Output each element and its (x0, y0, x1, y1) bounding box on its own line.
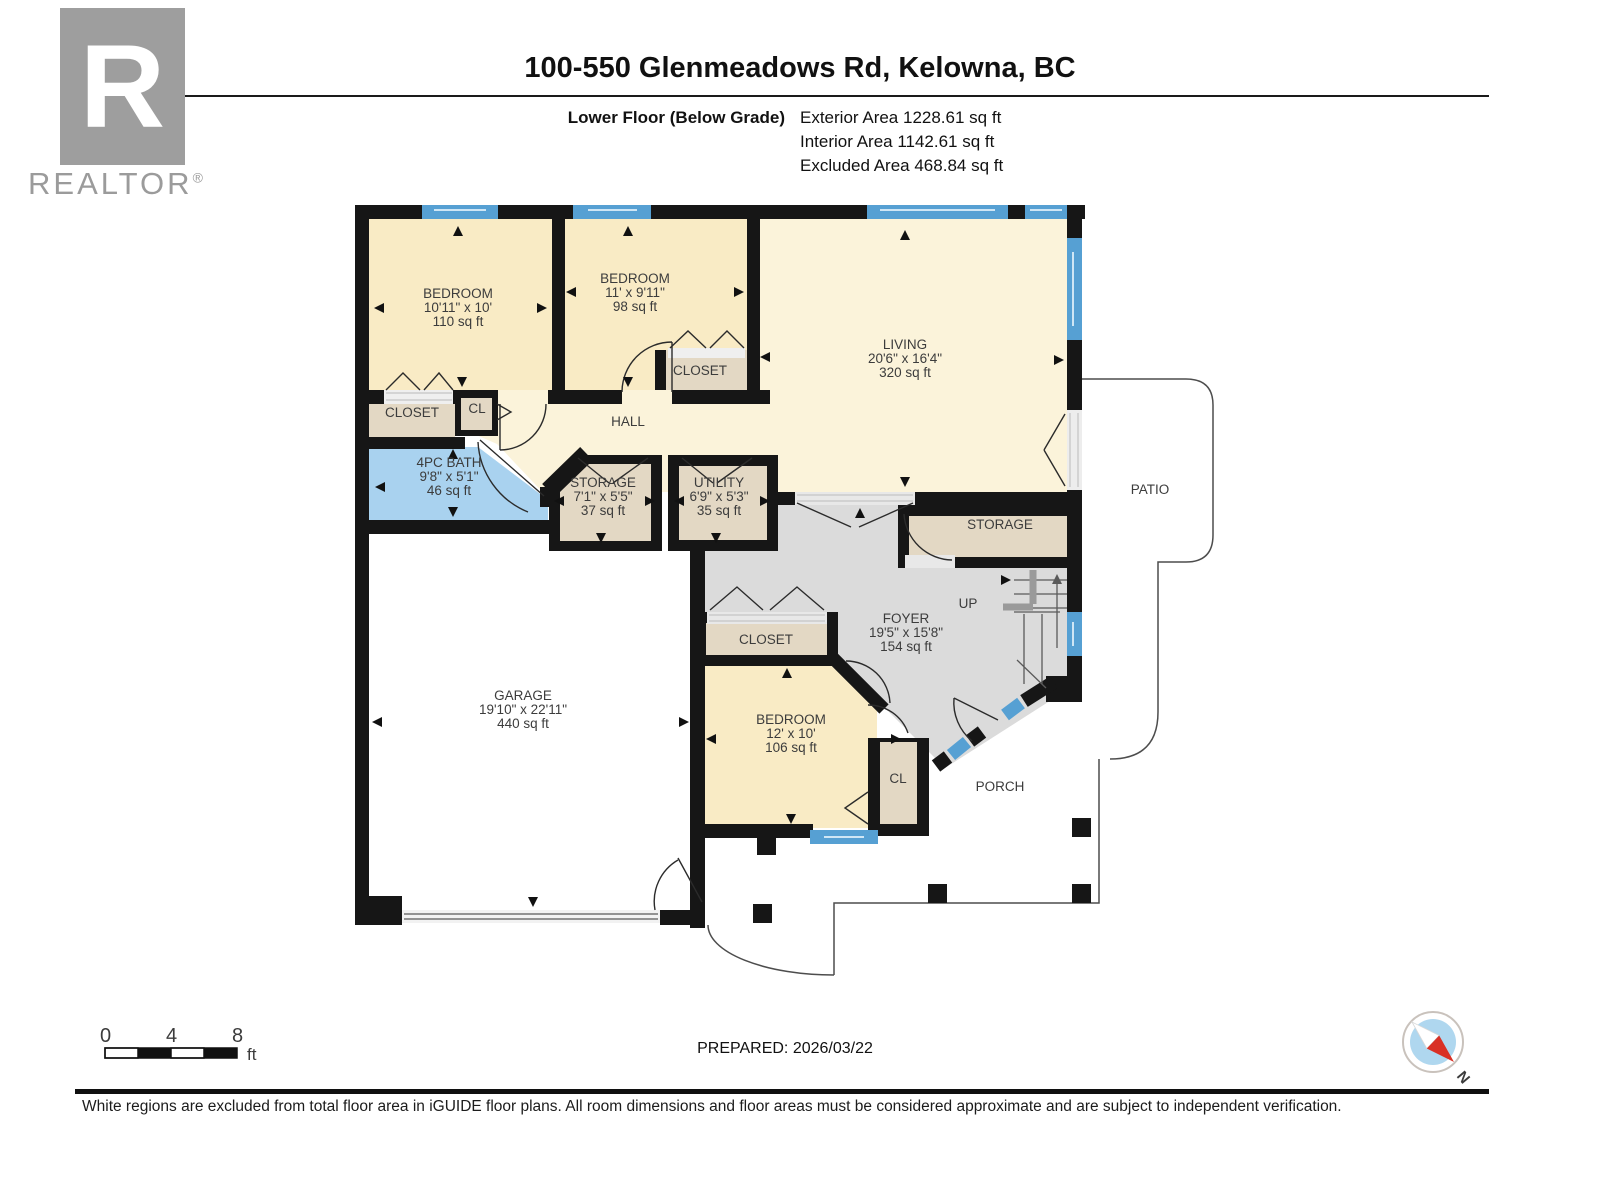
hall-label: HALL (611, 414, 645, 429)
bedroom-left-area: 110 sq ft (433, 314, 484, 329)
storage-name: STORAGE (570, 475, 636, 490)
scale-bar-segments (105, 1048, 237, 1058)
cl-label: CL (468, 401, 486, 416)
utility-area: 35 sq ft (697, 503, 742, 518)
bedroom-mid-area: 98 sq ft (613, 299, 658, 314)
realtor-wordmark: REALTOR® (28, 166, 206, 202)
closet-lower-label: CLOSET (739, 632, 793, 647)
realtor-logo-letter: R (80, 19, 165, 155)
garage-name: GARAGE (494, 688, 552, 703)
footer-divider (75, 1089, 1489, 1094)
bath-area: 46 sq ft (427, 483, 472, 498)
foyer-name: FOYER (883, 611, 930, 626)
storage2-label: STORAGE (967, 517, 1033, 532)
bath-name: 4PC BATH (416, 455, 481, 470)
utility-name: UTILITY (694, 475, 744, 490)
compass-icon: N (1388, 1008, 1488, 1098)
foyer-area: 154 sq ft (880, 639, 932, 654)
window-icon (1067, 238, 1082, 340)
storage-area: 37 sq ft (581, 503, 626, 518)
bedroom-lower-name: BEDROOM (756, 712, 826, 727)
bedroom-lower-dims: 12' x 10' (766, 726, 815, 741)
living-dims: 20'6" x 16'4" (868, 351, 942, 366)
bedroom-mid-dims: 11' x 9'11" (605, 285, 665, 300)
scale-bar: 0 4 8 ft (95, 1018, 295, 1078)
window-icon (573, 205, 651, 219)
bath-dims: 9'8" x 5'1" (419, 469, 478, 484)
patio-label: PATIO (1131, 482, 1170, 497)
utility-dims: 6'9" x 5'3" (689, 489, 748, 504)
scale-tick-4: 4 (166, 1025, 177, 1047)
disclaimer-text: White regions are excluded from total fl… (82, 1098, 1532, 1116)
storage-dims: 7'1" x 5'5" (573, 489, 632, 504)
porch-label: PORCH (976, 779, 1025, 794)
up-label: UP (959, 596, 978, 611)
window-icon (1025, 205, 1067, 219)
window-icon (867, 205, 1008, 219)
garage-dims: 19'10" x 22'11" (479, 702, 567, 717)
living-area: 320 sq ft (879, 365, 931, 380)
registered-mark: ® (193, 170, 206, 186)
window-icon (422, 205, 498, 219)
bedroom-mid-name: BEDROOM (600, 271, 670, 286)
cl-lower-label: CL (889, 771, 907, 786)
bedroom-left-dims: 10'11" x 10' (424, 300, 492, 315)
garage-area: 440 sq ft (497, 716, 549, 731)
bedroom-lower-area: 106 sq ft (765, 740, 817, 755)
scale-tick-8: 8 (232, 1025, 243, 1047)
closet-left-label: CLOSET (385, 405, 439, 420)
compass-north-label: N (1453, 1068, 1473, 1087)
foyer-dims: 19'5" x 15'8" (869, 625, 943, 640)
realtor-logo: R (60, 8, 185, 165)
scale-tick-0: 0 (100, 1025, 111, 1047)
window-icon (1067, 612, 1082, 656)
closet-mid-label: CLOSET (673, 363, 727, 378)
scale-unit: ft (247, 1045, 257, 1064)
living-name: LIVING (883, 337, 927, 352)
prepared-date: PREPARED: 2026/03/22 (585, 1040, 985, 1058)
bedroom-left-name: BEDROOM (423, 286, 493, 301)
